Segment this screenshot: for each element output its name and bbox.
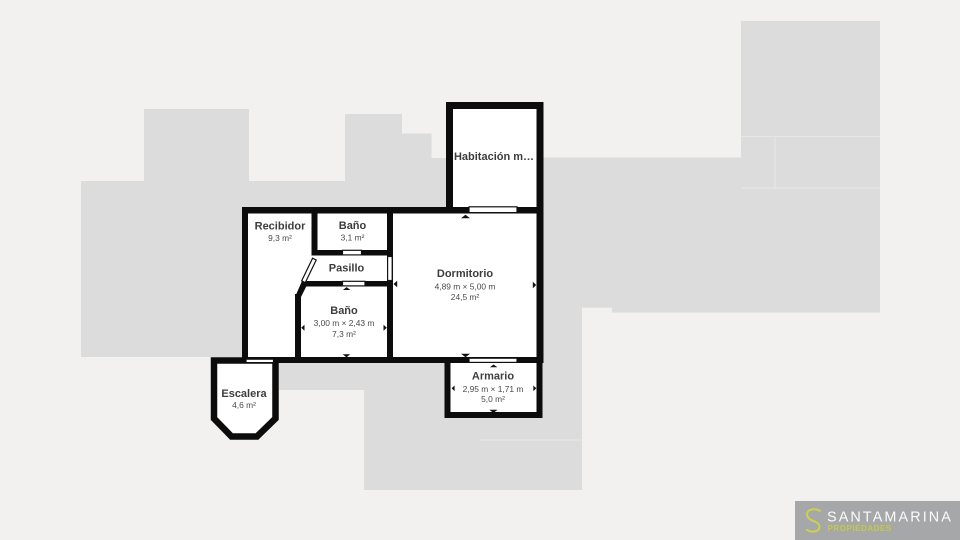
svg-text:4,6 m²: 4,6 m² bbox=[232, 400, 256, 410]
svg-text:7,3 m²: 7,3 m² bbox=[332, 329, 356, 339]
svg-text:2,95 m × 1,71 m: 2,95 m × 1,71 m bbox=[463, 384, 524, 394]
svg-text:5,0 m²: 5,0 m² bbox=[481, 394, 505, 404]
svg-text:Baño: Baño bbox=[339, 220, 367, 232]
svg-text:Escalera: Escalera bbox=[221, 388, 267, 400]
svg-text:Baño: Baño bbox=[330, 305, 358, 317]
svg-text:Recibidor: Recibidor bbox=[255, 221, 306, 233]
svg-text:Dormitorio: Dormitorio bbox=[437, 268, 494, 280]
svg-text:3,00 m × 2,43 m: 3,00 m × 2,43 m bbox=[314, 318, 375, 328]
svg-text:Habitación m…: Habitación m… bbox=[454, 151, 534, 163]
svg-text:3,1 m²: 3,1 m² bbox=[341, 233, 365, 243]
svg-text:PROPIEDADES: PROPIEDADES bbox=[828, 524, 892, 533]
svg-text:9,3 m²: 9,3 m² bbox=[268, 233, 292, 243]
svg-text:Armario: Armario bbox=[472, 371, 514, 383]
svg-text:24,5 m²: 24,5 m² bbox=[451, 292, 480, 302]
svg-text:4,89 m × 5,00 m: 4,89 m × 5,00 m bbox=[435, 282, 496, 292]
svg-text:Pasillo: Pasillo bbox=[329, 263, 365, 275]
